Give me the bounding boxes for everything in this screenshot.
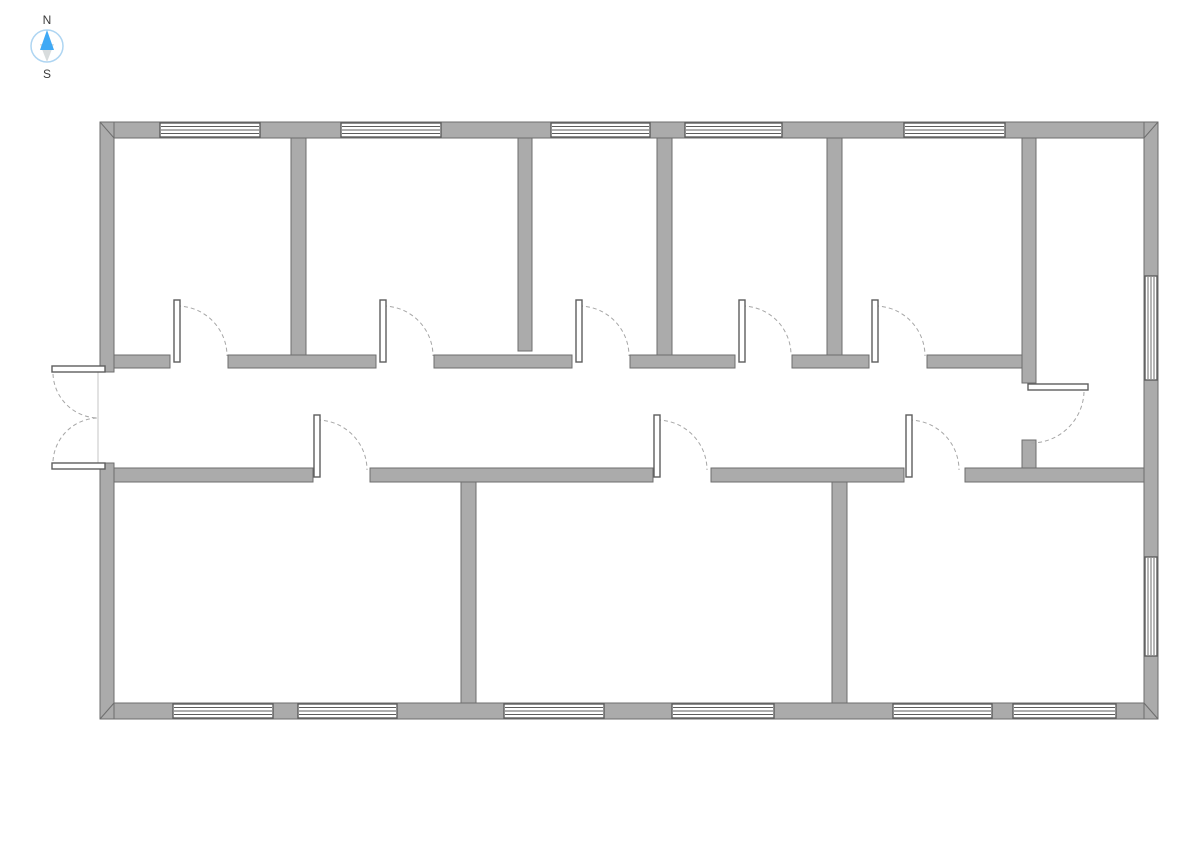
door-swing-arc bbox=[657, 420, 707, 470]
wall-corridor-south-seg-2 bbox=[370, 468, 653, 482]
window-south-window-5 bbox=[893, 704, 992, 718]
door-leaf bbox=[1028, 384, 1088, 390]
door-swing-arc bbox=[579, 306, 629, 356]
top-room-2-door bbox=[380, 300, 433, 362]
door-leaf bbox=[314, 415, 320, 477]
compass: N S bbox=[31, 13, 63, 81]
wall-divider-bottom-rooms-1-2 bbox=[461, 482, 476, 703]
wall-corridor-north-seg-2 bbox=[228, 355, 376, 368]
wall-divider-top-rooms-3-4 bbox=[657, 138, 672, 355]
window-south-window-3 bbox=[504, 704, 604, 718]
bottom-room-1-door bbox=[314, 415, 367, 477]
compass-north-label: N bbox=[43, 13, 52, 27]
wall-divider-bottom-rooms-2-3 bbox=[832, 482, 847, 703]
doors-layer bbox=[52, 300, 1088, 477]
wall-right-room-west-lower bbox=[1022, 440, 1036, 468]
window-east-window-1 bbox=[1145, 276, 1157, 380]
door-swing-arc bbox=[53, 374, 98, 418]
door-leaf bbox=[654, 415, 660, 477]
bottom-room-2-door bbox=[654, 415, 707, 477]
door-leaf bbox=[576, 300, 582, 362]
door-leaf bbox=[872, 300, 878, 362]
bottom-room-3-door bbox=[906, 415, 959, 477]
wall-corridor-north-seg-6 bbox=[927, 355, 1022, 368]
door-swing-arc bbox=[875, 306, 925, 356]
window-south-window-1 bbox=[173, 704, 273, 718]
door-leaf bbox=[739, 300, 745, 362]
window-north-window-2 bbox=[341, 123, 441, 137]
wall-corridor-north-seg-1 bbox=[114, 355, 170, 368]
window-east-window-2 bbox=[1145, 557, 1157, 656]
door-leaf bbox=[380, 300, 386, 362]
door-swing-arc bbox=[909, 420, 959, 470]
right-room-door bbox=[1028, 384, 1088, 443]
door-swing-arc bbox=[742, 306, 791, 355]
door-leaf bbox=[906, 415, 912, 477]
door-swing-arc bbox=[1031, 392, 1084, 443]
window-north-window-4 bbox=[685, 123, 782, 137]
door-swing-arc bbox=[317, 420, 367, 470]
wall-corridor-south-seg-3 bbox=[711, 468, 904, 482]
top-room-1-door bbox=[174, 300, 227, 362]
door-swing-arc bbox=[383, 306, 433, 356]
wall-corridor-south-seg-4 bbox=[965, 468, 1144, 482]
window-north-window-5 bbox=[904, 123, 1005, 137]
window-north-window-3 bbox=[551, 123, 650, 137]
compass-south-label: S bbox=[43, 67, 51, 81]
door-leaf bbox=[52, 366, 105, 372]
window-south-window-4 bbox=[672, 704, 774, 718]
wall-exterior-left-upper bbox=[100, 122, 114, 372]
entrance-double-door bbox=[52, 366, 105, 469]
wall-corridor-north-seg-5 bbox=[792, 355, 869, 368]
wall-divider-top-rooms-1-2 bbox=[291, 138, 306, 355]
window-south-window-2 bbox=[298, 704, 397, 718]
door-swing-arc bbox=[53, 418, 98, 461]
door-leaf bbox=[174, 300, 180, 362]
door-swing-arc bbox=[177, 306, 227, 356]
wall-corridor-north-seg-4 bbox=[630, 355, 735, 368]
wall-corridor-south-seg-1 bbox=[114, 468, 313, 482]
top-room-4-door bbox=[739, 300, 791, 362]
window-north-window-1 bbox=[160, 123, 260, 137]
top-room-5-door bbox=[872, 300, 925, 362]
floorplan-drawing: N S bbox=[0, 0, 1191, 842]
wall-divider-top-rooms-2-3 bbox=[518, 138, 532, 351]
door-leaf bbox=[52, 463, 105, 469]
wall-divider-top-rooms-4-5 bbox=[827, 138, 842, 355]
floorplan-canvas: N S bbox=[0, 0, 1191, 842]
walls-layer bbox=[100, 122, 1158, 719]
top-room-3-door bbox=[576, 300, 629, 362]
wall-right-room-west-upper bbox=[1022, 138, 1036, 383]
wall-corridor-north-seg-3 bbox=[434, 355, 572, 368]
wall-exterior-left-lower bbox=[100, 463, 114, 719]
window-south-window-6 bbox=[1013, 704, 1116, 718]
